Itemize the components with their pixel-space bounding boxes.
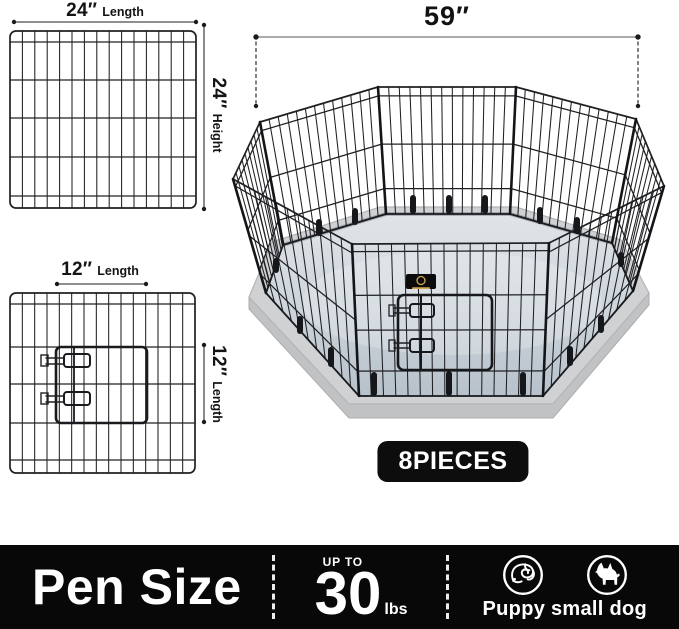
dimension-24-height: 24″ Height (207, 57, 229, 173)
dimension-12-length: 12″ Length (25, 259, 175, 281)
pet-icons (501, 553, 629, 597)
weight-row: 30 lbs (315, 569, 408, 619)
dimension-24-length: 24″ Length (20, 0, 190, 22)
dimension-12-side-word: Length (210, 381, 224, 423)
dashed-divider (272, 555, 275, 619)
pen-size-title: Pen Size (32, 558, 242, 616)
dimension-24-height-value: 24″ (207, 77, 229, 108)
panel-12-door-diagram (10, 293, 195, 473)
dimension-12-length-value: 12″ (61, 259, 92, 281)
panel-24-diagram (10, 31, 196, 208)
dimension-12-side-value: 12″ (207, 345, 229, 376)
weight-value: 30 (315, 569, 382, 618)
dimension-24-height-word: Height (210, 114, 224, 153)
pet-suitability: Puppy small dog (483, 553, 648, 621)
dimension-24-length-word: Length (102, 5, 144, 19)
dimension-12-side: 12″ Length (207, 331, 229, 437)
puppy-icon (501, 553, 545, 597)
dimension-12-length-word: Length (97, 264, 139, 278)
pieces-badge: 8PIECES (377, 441, 528, 482)
dimension-pen-width: 59″ (347, 1, 547, 32)
pen-illustration (233, 87, 664, 418)
weight-unit: lbs (384, 601, 407, 619)
dimension-24-length-value: 24″ (66, 0, 97, 22)
weight-capacity: UP TO 30 lbs (315, 555, 408, 619)
brand-logo (406, 274, 436, 289)
dashed-divider (446, 555, 449, 619)
pets-label: Puppy small dog (483, 598, 648, 621)
small-dog-icon (585, 553, 629, 597)
product-image: 24″ Length 24″ Height 12″ Length 12″ Len… (0, 0, 679, 545)
info-bar: Pen Size UP TO 30 lbs (0, 545, 679, 629)
